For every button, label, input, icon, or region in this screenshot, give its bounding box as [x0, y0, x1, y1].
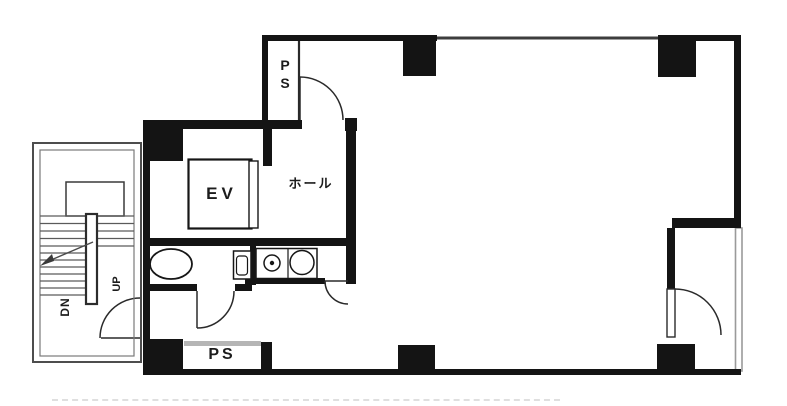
bottom-wall: [143, 369, 741, 375]
column-bottom-right: [657, 344, 695, 371]
right-wall-window: [736, 228, 743, 371]
hall-right-wall: [346, 118, 356, 284]
fixtures: [150, 249, 317, 280]
elevator-label: EV: [188, 159, 251, 228]
alcove-door-swing: [675, 289, 721, 335]
wc-door-swing: [197, 291, 234, 328]
wc-wall-stub: [235, 284, 252, 291]
alcove-left-wall: [667, 228, 675, 289]
ev-hall-wall-stub: [263, 120, 272, 166]
hall-bottom-wall: [143, 238, 356, 246]
column-bottom-left: [143, 339, 183, 374]
wc-sink-bowl: [237, 256, 248, 275]
upper-left-wall: [262, 35, 268, 122]
toilet: [150, 249, 192, 279]
pipe-shaft-bottom-label: PS: [196, 347, 248, 363]
column-top-left: [403, 41, 436, 76]
scan-artifact-line: [52, 399, 560, 401]
right-wall-upper: [734, 35, 741, 228]
top-wall-right: [658, 35, 741, 41]
kitchen-burner-center: [270, 261, 274, 265]
stairs-up-label: UP: [112, 269, 126, 299]
column-top-right: [658, 41, 696, 77]
kitchen-sink-bowl: [290, 251, 314, 275]
staircase: [33, 143, 141, 362]
kitchen-door-swing: [325, 281, 348, 304]
top-wall-left: [262, 35, 437, 41]
stairs-down-label: DN: [59, 289, 73, 325]
floor-plan: EV ホール PS PS UP DN: [0, 0, 787, 406]
column-bottom-center: [398, 345, 435, 371]
hall-door-swing: [300, 77, 343, 120]
floor-plan-drawing: [0, 0, 787, 406]
alcove-door-leaf: [667, 289, 675, 337]
column-annex-top: [143, 122, 183, 161]
pipe-shaft-top-label: PS: [272, 57, 292, 107]
hall-label: ホール: [272, 177, 350, 190]
alcove-top-wall: [672, 218, 741, 228]
ps-box-wall-stub: [261, 342, 272, 371]
wc-bottom-wall: [143, 284, 197, 291]
stair-landing: [66, 182, 124, 216]
top-wall-window-strip: [437, 37, 658, 40]
stair-center-wall: [86, 214, 97, 304]
